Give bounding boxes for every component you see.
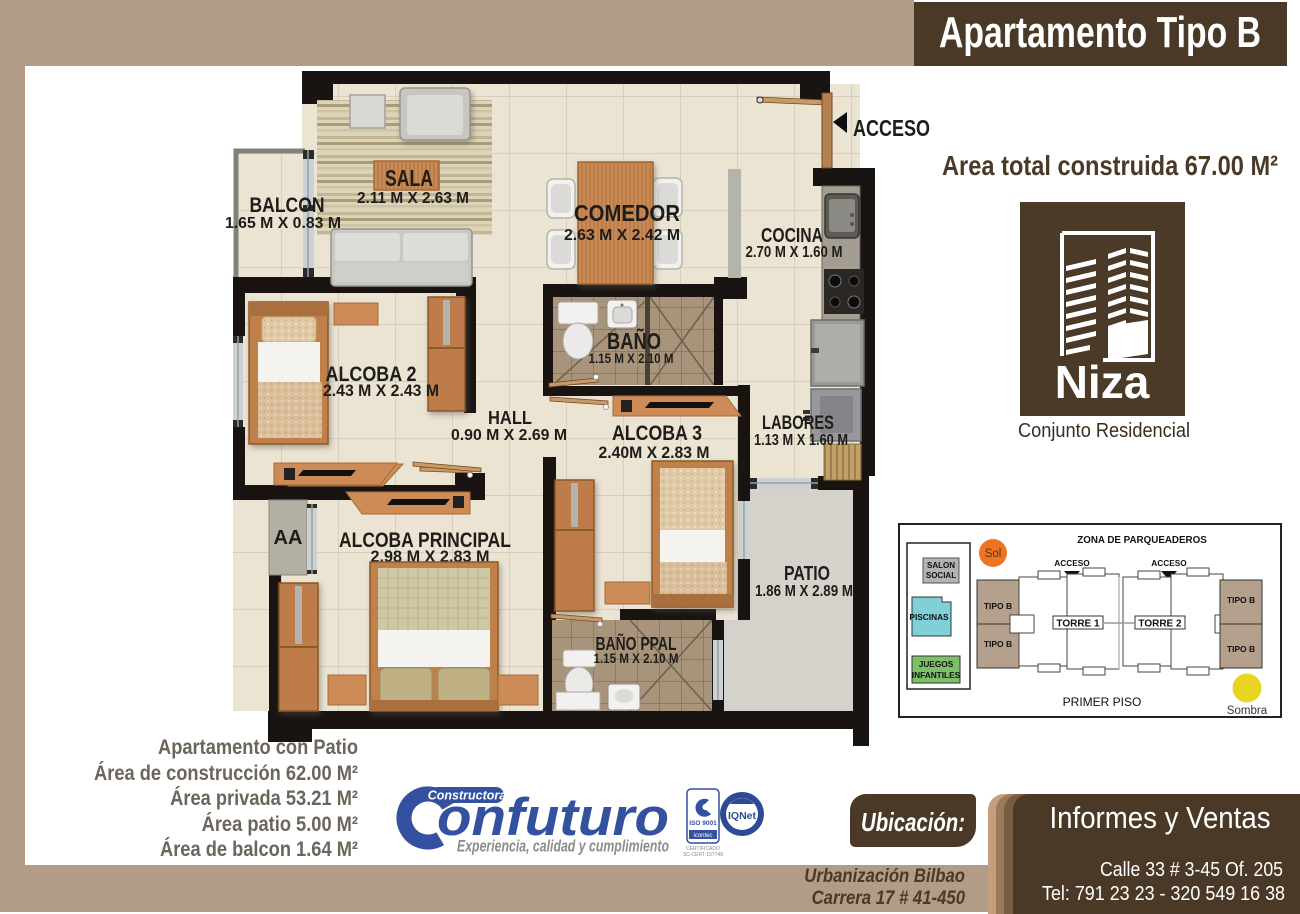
svg-text:2.43 M X 2.43 M: 2.43 M X 2.43 M (323, 382, 439, 400)
svg-text:ACCESO: ACCESO (1151, 558, 1187, 568)
svg-text:HALL: HALL (488, 408, 532, 428)
svg-text:ISO 9001: ISO 9001 (689, 820, 717, 827)
svg-text:Sombra: Sombra (1227, 705, 1268, 717)
svg-text:ACCESO: ACCESO (1054, 558, 1090, 568)
svg-text:Apartamento Tipo B: Apartamento Tipo B (939, 8, 1261, 57)
svg-text:1.13 M X 1.60 M: 1.13 M X 1.60 M (754, 432, 848, 449)
svg-text:TIPO B: TIPO B (984, 601, 1012, 611)
svg-text:BAÑO: BAÑO (607, 327, 661, 354)
svg-text:COMEDOR: COMEDOR (574, 200, 680, 226)
svg-text:PATIO: PATIO (784, 563, 830, 585)
svg-text:2.63 M X 2.42 M: 2.63 M X 2.42 M (564, 227, 680, 244)
svg-text:BALCON: BALCON (250, 194, 325, 217)
svg-text:LABORES: LABORES (762, 413, 834, 434)
svg-text:Area total construida 67.00 M²: Area total construida 67.00 M² (942, 150, 1278, 181)
svg-text:ZONA DE PARQUEADEROS: ZONA DE PARQUEADEROS (1077, 535, 1207, 546)
svg-text:Ubicación:: Ubicación: (861, 807, 965, 837)
svg-text:Sol: Sol (985, 548, 1002, 560)
svg-text:icontec: icontec (693, 833, 712, 839)
svg-text:PRIMER PISO: PRIMER PISO (1063, 695, 1142, 709)
svg-text:TIPO B: TIPO B (1227, 644, 1255, 654)
svg-text:2.40M X 2.83 M: 2.40M X 2.83 M (599, 444, 710, 462)
svg-text:1.15 M X 2.10 M: 1.15 M X 2.10 M (589, 351, 674, 366)
svg-text:Conjunto Residencial: Conjunto Residencial (1018, 420, 1190, 442)
svg-text:2.11 M X 2.63 M: 2.11 M X 2.63 M (357, 190, 469, 207)
svg-text:Experiencia, calidad y cumplim: Experiencia, calidad y cumplimiento (457, 838, 669, 856)
svg-text:TIPO B: TIPO B (1227, 595, 1255, 605)
svg-text:IQNet: IQNet (728, 810, 757, 822)
svg-text:Niza: Niza (1055, 356, 1150, 408)
svg-text:Tel: 791 23 23 - 320 549 16 38: Tel: 791 23 23 - 320 549 16 38 (1042, 883, 1285, 905)
svg-text:1.65 M X 0.83 M: 1.65 M X 0.83 M (225, 215, 341, 232)
svg-text:SC-CERT 157748: SC-CERT 157748 (683, 852, 723, 858)
svg-text:TORRE 2: TORRE 2 (1138, 619, 1182, 630)
svg-text:Informes y Ventas: Informes y Ventas (1050, 800, 1271, 835)
svg-text:Calle 33 # 3-45 Of. 205: Calle 33 # 3-45 Of. 205 (1100, 859, 1283, 881)
svg-text:0.90 M X 2.69 M: 0.90 M X 2.69 M (451, 427, 567, 444)
svg-text:2.70 M X 1.60 M: 2.70 M X 1.60 M (746, 244, 843, 261)
svg-text:1.86 M X 2.89 M: 1.86 M X 2.89 M (755, 583, 853, 600)
svg-text:1.15 M X 2.10 M: 1.15 M X 2.10 M (594, 651, 679, 666)
svg-text:SALA: SALA (385, 165, 433, 191)
svg-text:TIPO B: TIPO B (984, 639, 1012, 649)
svg-text:TORRE 1: TORRE 1 (1056, 619, 1100, 630)
svg-text:AA: AA (274, 527, 303, 549)
svg-text:ALCOBA 3: ALCOBA 3 (612, 422, 702, 445)
svg-text:ACCESO: ACCESO (853, 115, 930, 141)
